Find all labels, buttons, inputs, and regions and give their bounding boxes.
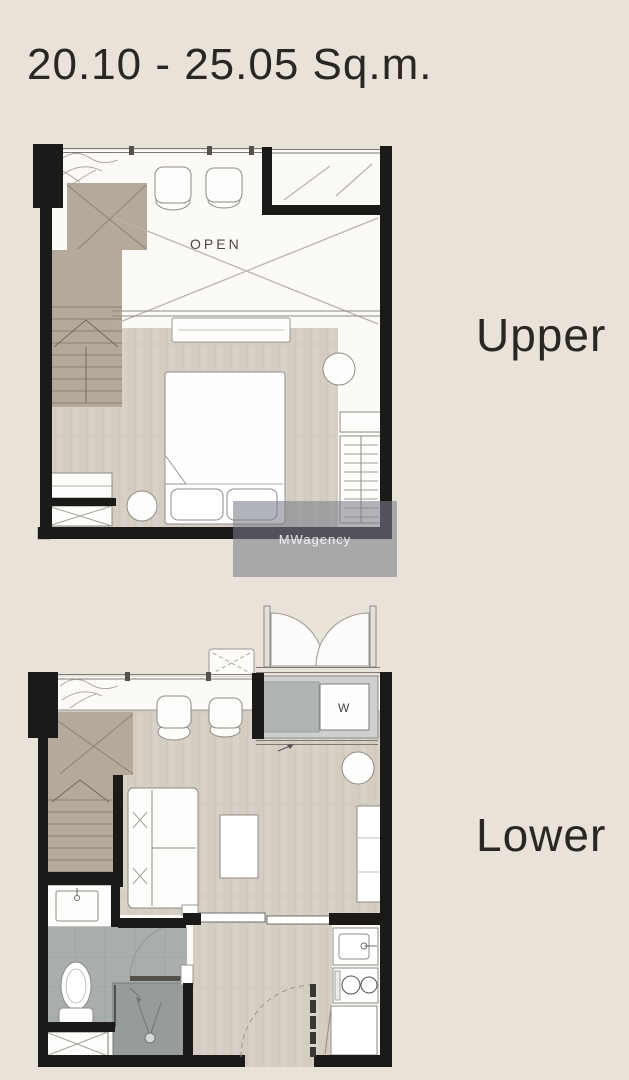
- side-table: [323, 353, 355, 385]
- washer-label: W: [338, 701, 350, 715]
- watermark-text: MWagency: [279, 532, 352, 547]
- lower-ac-unit: [46, 1032, 108, 1056]
- shower: [113, 983, 187, 1057]
- lower-floor-plan: W: [28, 606, 392, 1067]
- watermark-overlay: MWagency: [233, 501, 397, 577]
- railing-console: [172, 318, 290, 342]
- sofa: [128, 788, 198, 908]
- dining-table: [342, 752, 374, 784]
- pillow: [171, 489, 223, 520]
- coffee-table: [220, 815, 258, 878]
- hall-shelf: [181, 965, 193, 985]
- washer-area: [256, 668, 380, 752]
- tv-console: [357, 806, 382, 902]
- toilet: [59, 962, 93, 1030]
- stove: [333, 968, 378, 1003]
- balcony-doors: [264, 606, 376, 667]
- floor-plan-page: 20.10 - 25.05 Sq.m. Upper Lower: [0, 0, 629, 1080]
- kitchen-counter: [325, 1006, 377, 1055]
- upper-ac-unit: [48, 506, 112, 526]
- kitchen-sink: [333, 928, 378, 965]
- open-label: OPEN: [190, 236, 242, 252]
- planter-box: [209, 649, 254, 677]
- left-cabinet: [48, 473, 112, 498]
- upper-floor-plan: OPEN: [33, 144, 392, 539]
- bedroom-stool: [127, 491, 157, 521]
- vanity-sink: [45, 885, 113, 927]
